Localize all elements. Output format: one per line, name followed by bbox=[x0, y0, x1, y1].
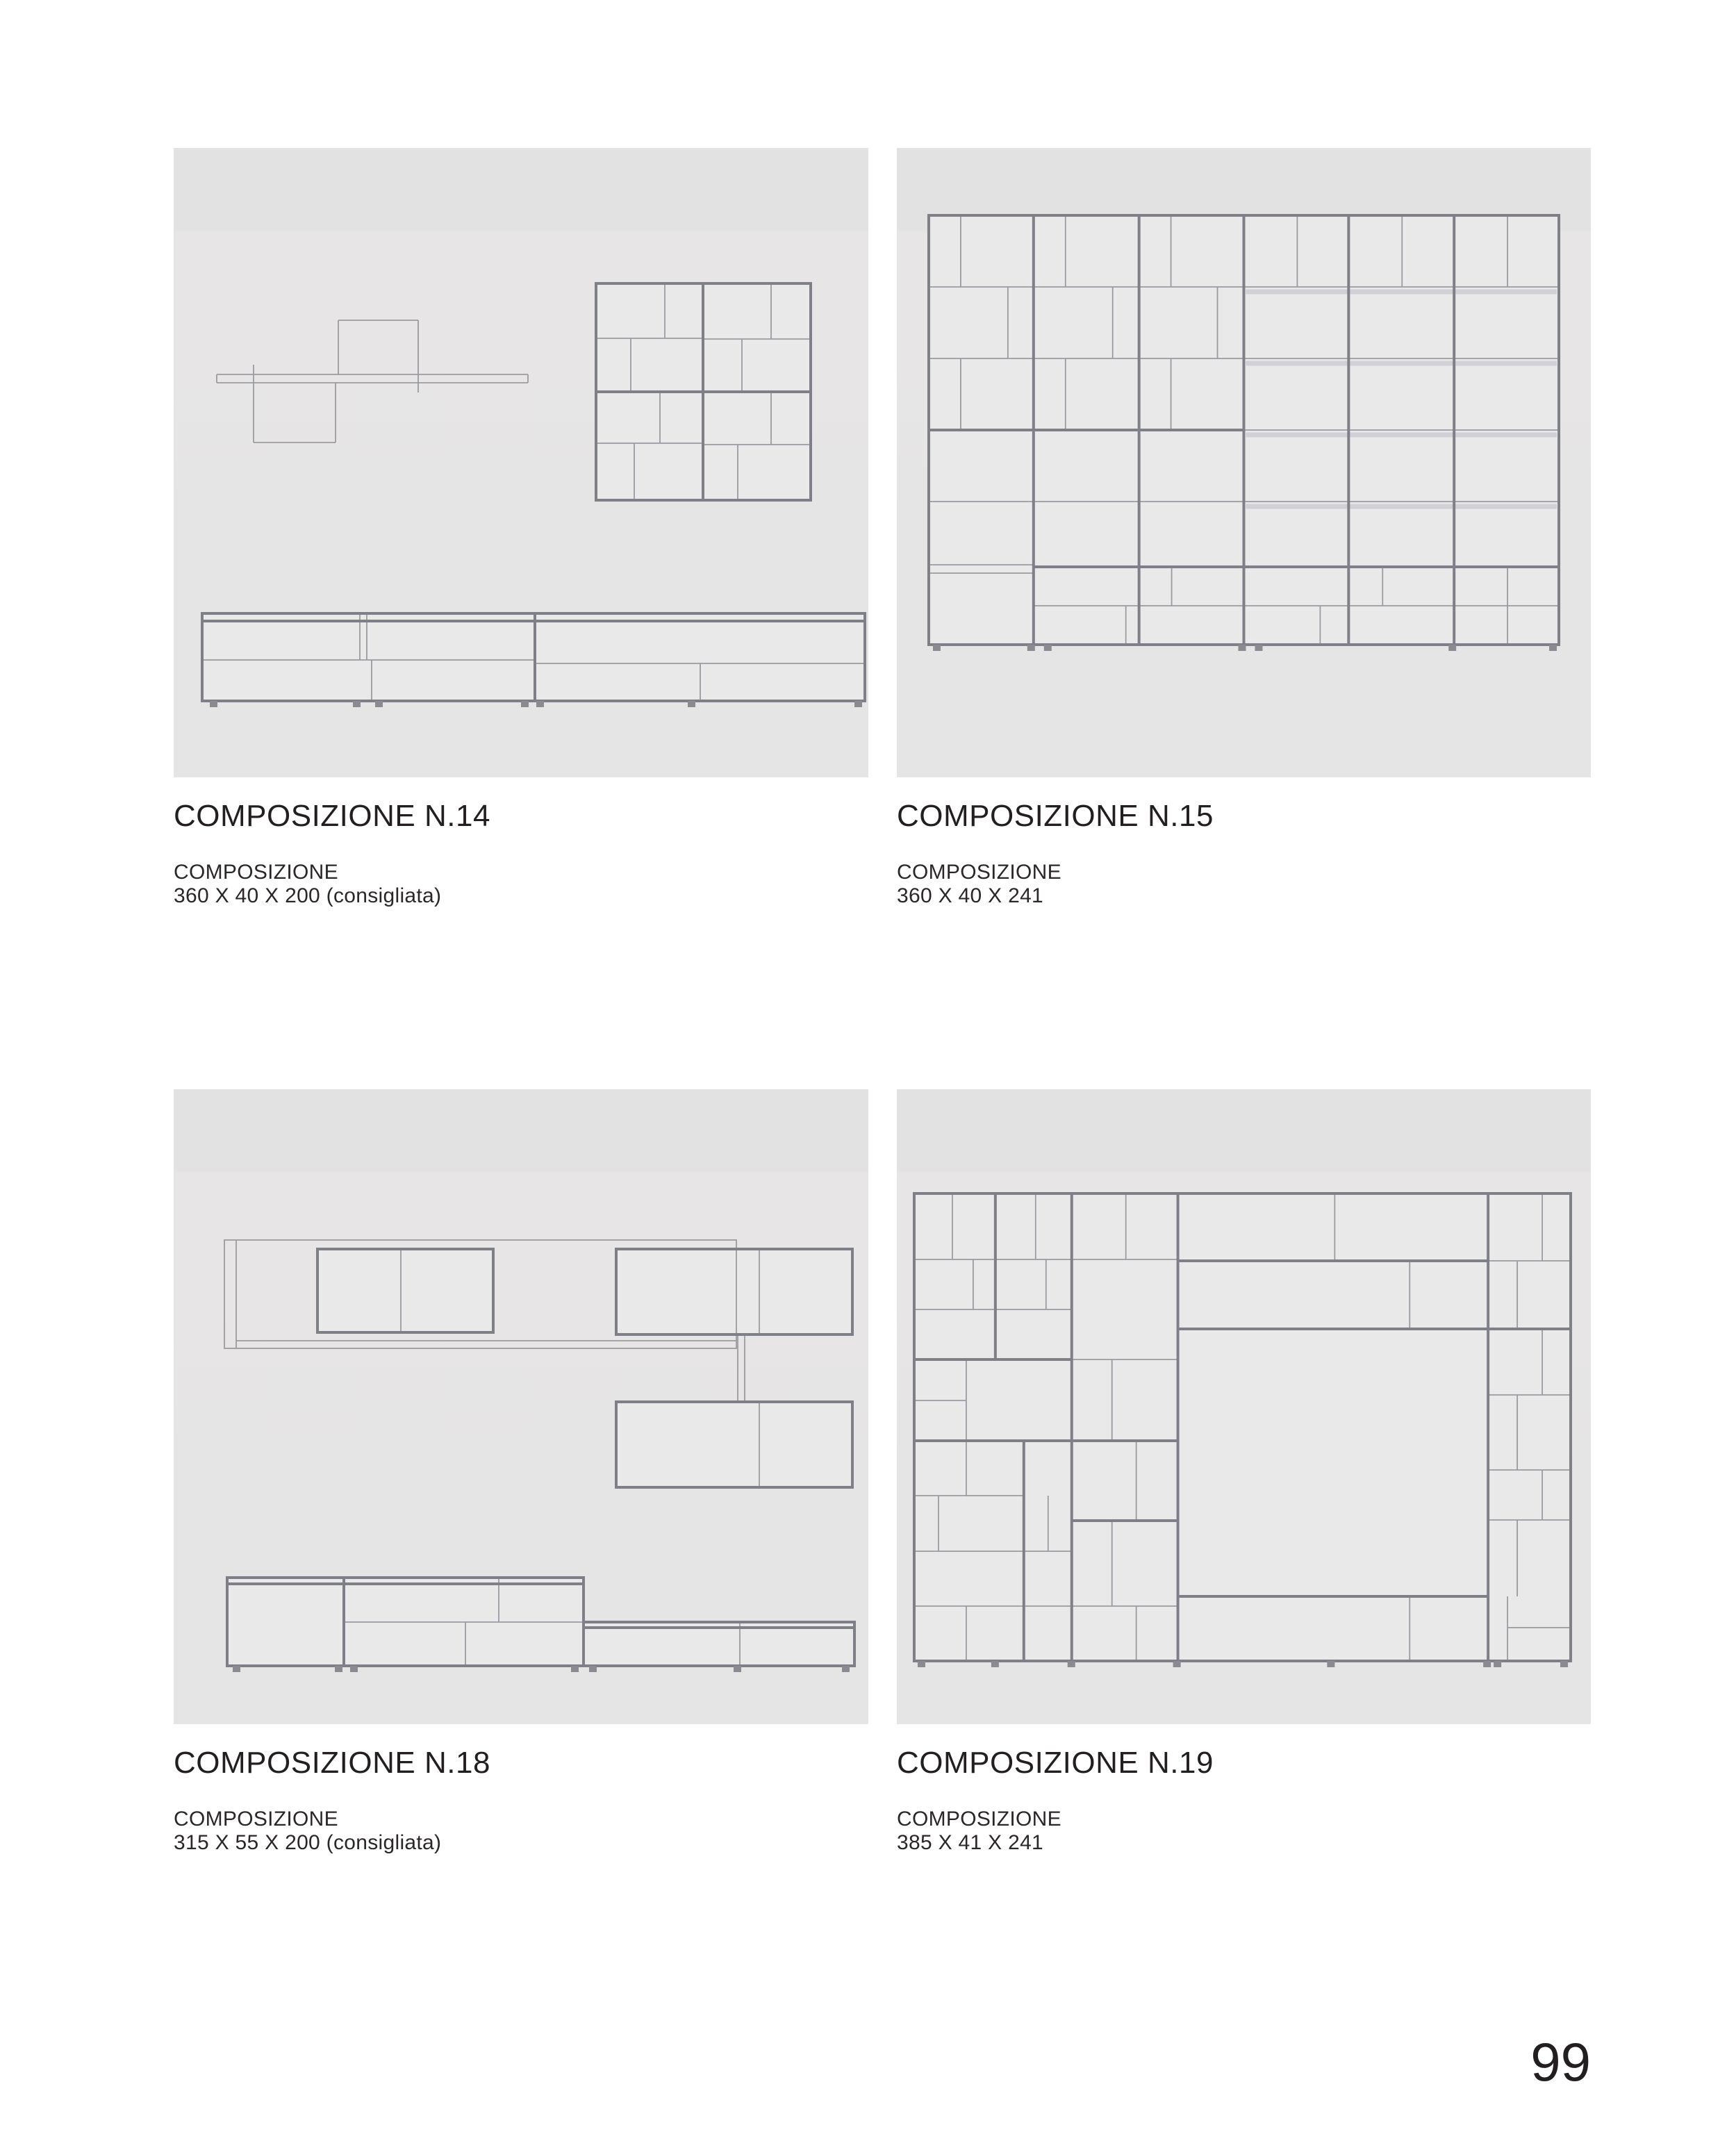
composition-spec: COMPOSIZIONE 385 X 41 X 241 bbox=[897, 1808, 1591, 1855]
composition-drawing-n19 bbox=[897, 1089, 1591, 1724]
composition-figure-n15: COMPOSIZIONE N.15 COMPOSIZIONE 360 X 40 … bbox=[897, 148, 1591, 908]
composition-spec: COMPOSIZIONE 360 X 40 X 200 (consigliata… bbox=[174, 861, 868, 908]
spec-dimensions: 360 X 40 X 241 bbox=[897, 884, 1591, 908]
composition-figure-n14: COMPOSIZIONE N.14 COMPOSIZIONE 360 X 40 … bbox=[174, 148, 868, 908]
composition-figure-n18: COMPOSIZIONE N.18 COMPOSIZIONE 315 X 55 … bbox=[174, 1089, 868, 1855]
spec-label: COMPOSIZIONE bbox=[174, 1808, 868, 1831]
spec-label: COMPOSIZIONE bbox=[174, 861, 868, 884]
composition-drawing-n14 bbox=[174, 148, 868, 777]
composition-title: COMPOSIZIONE N.15 bbox=[897, 800, 1591, 833]
composition-spec: COMPOSIZIONE 315 X 55 X 200 (consigliata… bbox=[174, 1808, 868, 1855]
composition-title: COMPOSIZIONE N.19 bbox=[897, 1746, 1591, 1780]
composition-image-n14 bbox=[174, 148, 868, 777]
composition-figure-n19: COMPOSIZIONE N.19 COMPOSIZIONE 385 X 41 … bbox=[897, 1089, 1591, 1855]
spec-dimensions: 360 X 40 X 200 (consigliata) bbox=[174, 884, 868, 908]
composition-image-n19 bbox=[897, 1089, 1591, 1724]
spec-dimensions: 315 X 55 X 200 (consigliata) bbox=[174, 1831, 868, 1855]
composition-image-n15 bbox=[897, 148, 1591, 777]
composition-spec: COMPOSIZIONE 360 X 40 X 241 bbox=[897, 861, 1591, 908]
catalog-page: { "page_number": "99", "colors": { "pane… bbox=[0, 0, 1736, 2141]
spec-label: COMPOSIZIONE bbox=[897, 861, 1591, 884]
composition-drawing-n18 bbox=[174, 1089, 868, 1724]
composition-image-n18 bbox=[174, 1089, 868, 1724]
page-number: 99 bbox=[1530, 2034, 1591, 2090]
spec-dimensions: 385 X 41 X 241 bbox=[897, 1831, 1591, 1855]
composition-drawing-n15 bbox=[897, 148, 1591, 777]
spec-label: COMPOSIZIONE bbox=[897, 1808, 1591, 1831]
composition-title: COMPOSIZIONE N.14 bbox=[174, 800, 868, 833]
composition-title: COMPOSIZIONE N.18 bbox=[174, 1746, 868, 1780]
